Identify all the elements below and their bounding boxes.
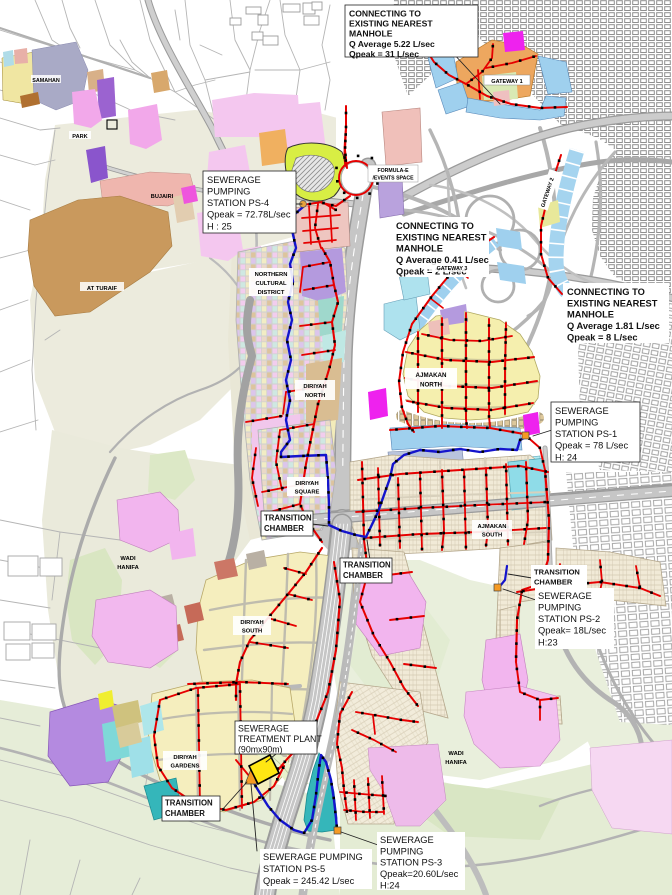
svg-text:GATEWAY 1: GATEWAY 1: [491, 79, 522, 85]
svg-text:BUJAIRI: BUJAIRI: [151, 194, 174, 200]
svg-text:FORMULA-E/EVENTS SPACE: FORMULA-E/EVENTS SPACE: [372, 168, 414, 182]
svg-text:AT TURAIF: AT TURAIF: [87, 286, 118, 292]
svg-text:NORTHERNCULTURALDISTRICT: NORTHERNCULTURALDISTRICT: [255, 272, 288, 296]
svg-text:PARK: PARK: [72, 134, 87, 140]
svg-text:SAMAHAN: SAMAHAN: [32, 78, 60, 84]
svg-text:GATEWAY 3: GATEWAY 3: [437, 266, 468, 272]
